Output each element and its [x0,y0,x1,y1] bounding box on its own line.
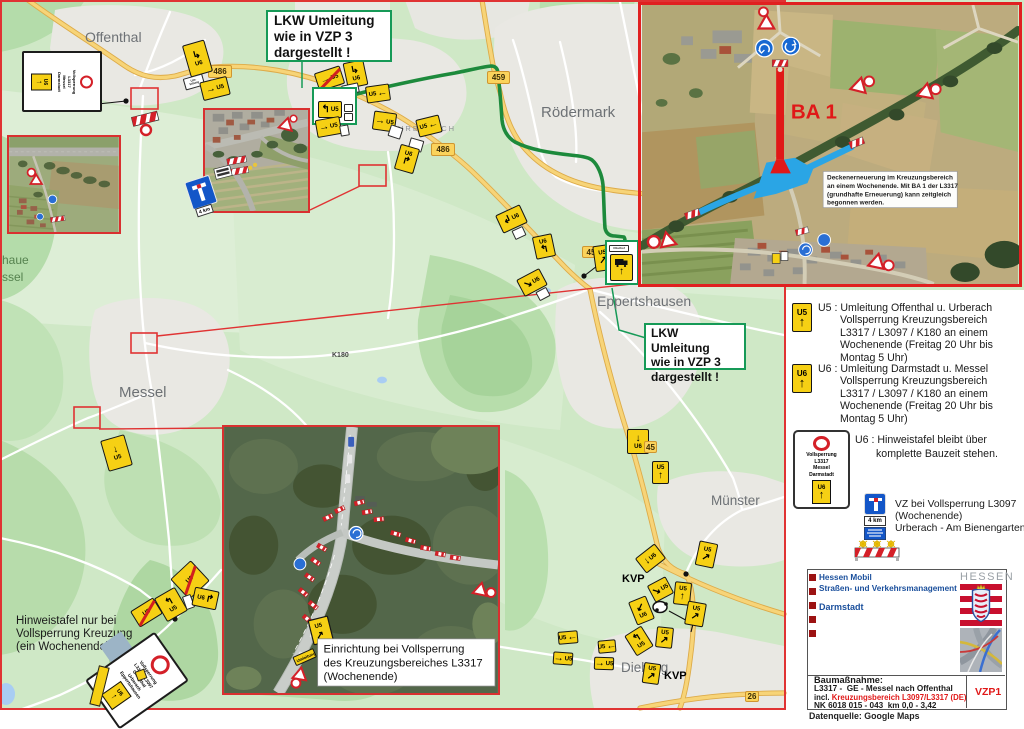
svg-text:an einem Wochenende. Mit BA 1: an einem Wochenende. Mit BA 1 der L3317 [827,183,958,190]
svg-text:Messel: Messel [119,384,167,401]
svg-text:begonnen werden.: begonnen werden. [827,200,884,207]
svg-text:Deckenerneuerung im Kreuzungsb: Deckenerneuerung im Kreuzungsbereich [827,175,953,182]
svg-text:Eppertshausen: Eppertshausen [597,293,691,309]
svg-text:haue: haue [2,253,29,267]
svg-text:K180: K180 [332,352,349,359]
svg-text:Einrichtung bei Vollsperrung: Einrichtung bei Vollsperrung [324,644,465,656]
svg-text:Rödermark: Rödermark [541,104,616,121]
svg-text:Münster: Münster [711,493,760,508]
svg-text:des Kreuzungsbereiches L3317: des Kreuzungsbereiches L3317 [324,657,483,669]
svg-text:(grundhafte Erneuerung) kann z: (grundhafte Erneuerung) kann zeitgleich [827,191,951,198]
svg-text:(Wochenende): (Wochenende) [324,671,398,683]
svg-text:BA 1: BA 1 [791,101,837,124]
svg-text:Offenthal: Offenthal [85,29,142,45]
svg-text:ssel: ssel [2,270,23,284]
